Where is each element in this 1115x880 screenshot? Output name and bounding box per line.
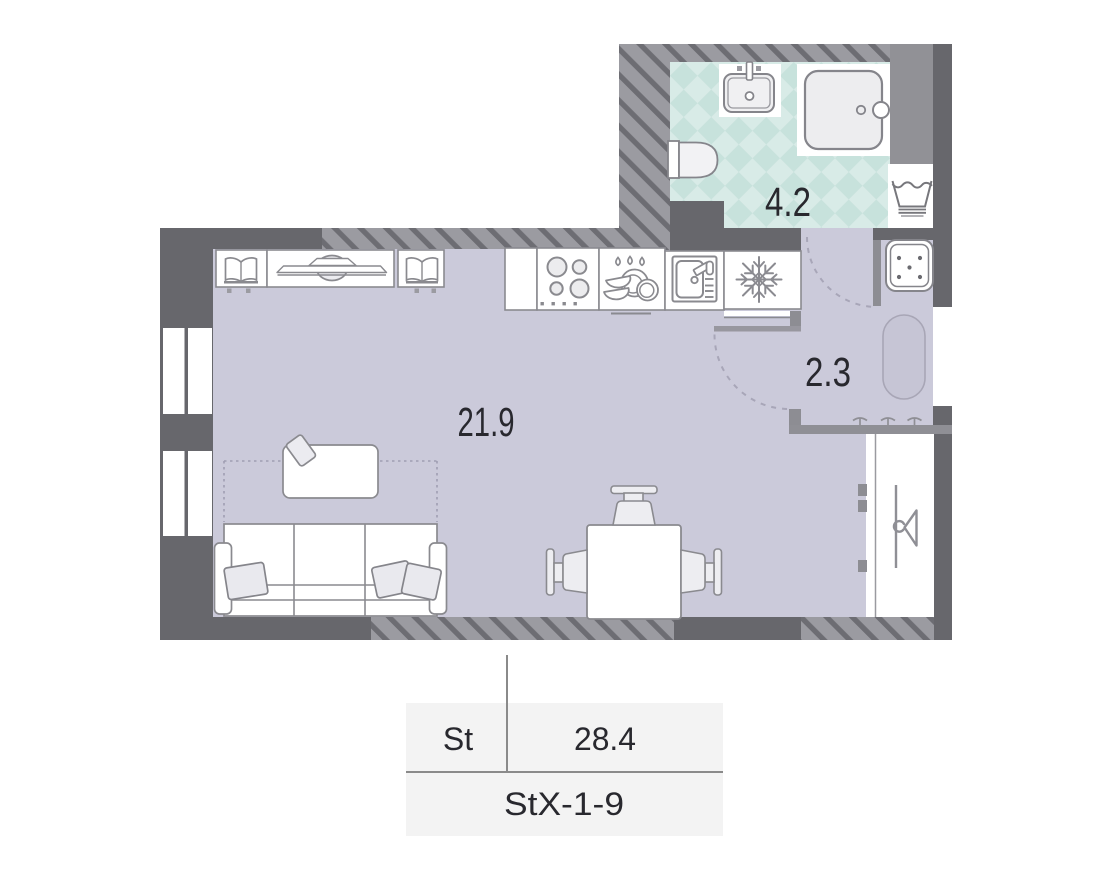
svg-text:2.3: 2.3 (805, 349, 851, 395)
svg-text:St: St (443, 721, 473, 757)
svg-text:StX-1-9: StX-1-9 (504, 786, 624, 822)
svg-text:21.9: 21.9 (458, 399, 515, 445)
svg-text:4.2: 4.2 (765, 179, 811, 225)
svg-text:28.4: 28.4 (574, 721, 636, 757)
